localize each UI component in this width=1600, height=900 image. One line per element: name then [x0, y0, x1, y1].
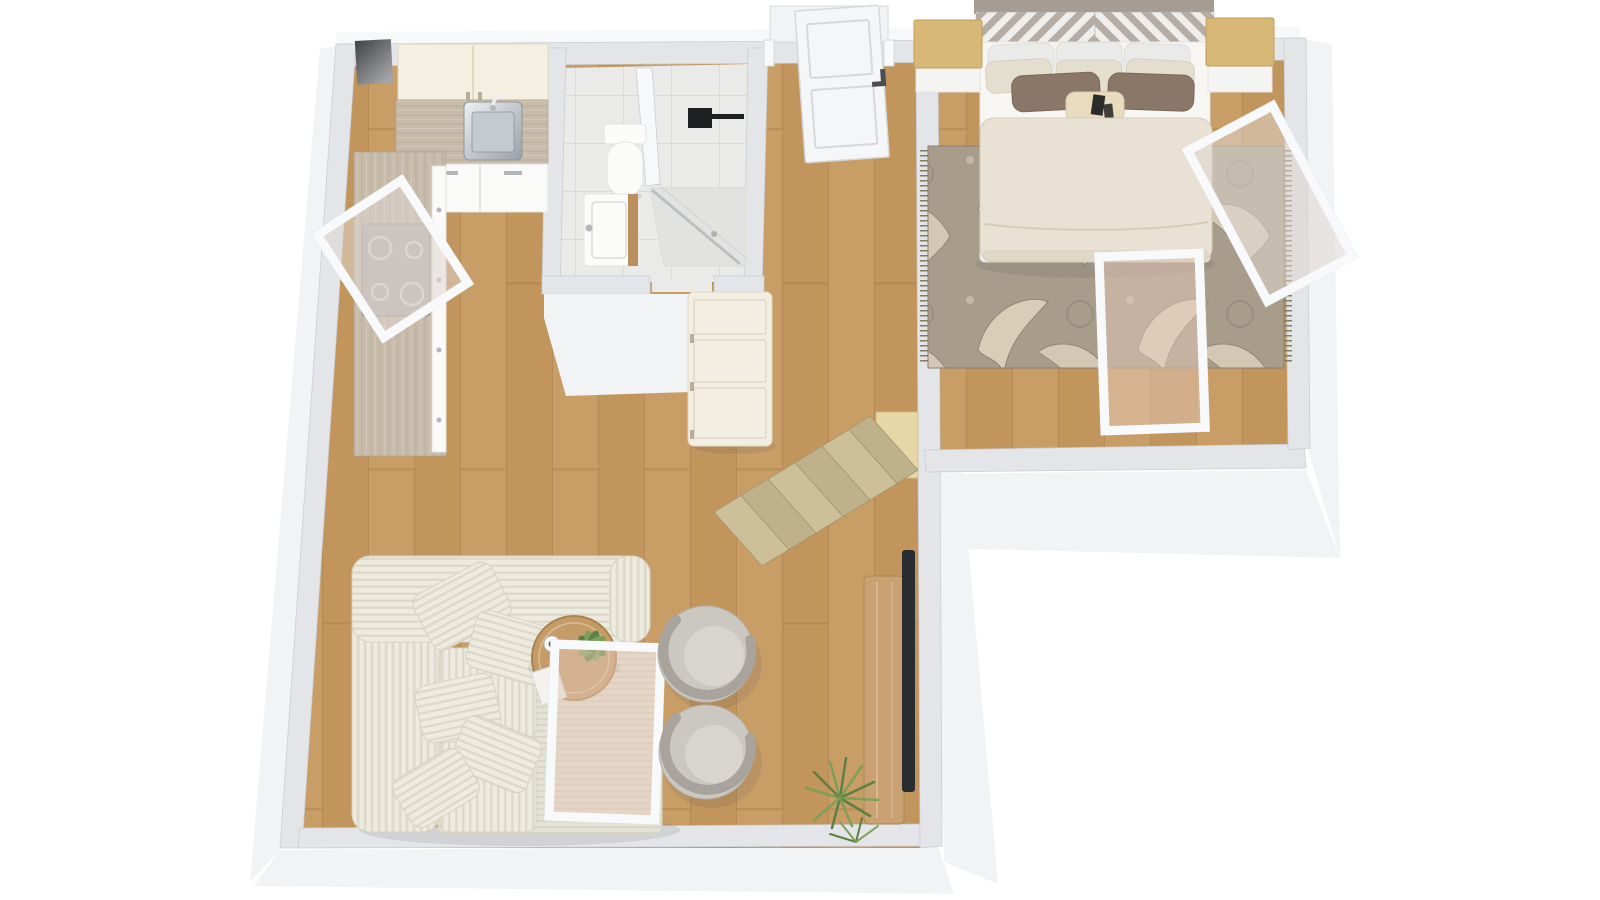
living-open-window	[545, 640, 665, 824]
door-handle	[880, 69, 886, 83]
bath-bottom-wall-right	[714, 276, 764, 294]
bedroom-right-wall-face	[1306, 40, 1340, 558]
faucet-base	[490, 105, 496, 111]
wall-shaft-opening	[355, 39, 393, 85]
vanity-wood-side	[628, 194, 638, 266]
floorplan-render	[0, 0, 1600, 900]
bathroom-door-threshold	[652, 278, 712, 292]
wall-tv	[902, 550, 915, 792]
door-frame-post	[764, 40, 774, 66]
bedroom-bottom-wall-face	[926, 470, 1340, 558]
toilet	[604, 124, 646, 201]
media-sideboard	[864, 576, 904, 824]
door-frame-post	[884, 40, 894, 66]
toilet-bowl	[607, 142, 643, 196]
vanity-faucet	[586, 225, 593, 232]
wardrobe-handle	[690, 334, 694, 343]
vanity-sink	[584, 194, 638, 266]
nightstand-right	[1206, 18, 1274, 92]
armchair-seat	[684, 626, 744, 686]
duvet	[980, 118, 1212, 262]
knob	[437, 418, 442, 423]
knob	[437, 348, 442, 353]
sink-basin-inner	[472, 112, 514, 152]
wardrobe-body	[688, 292, 772, 446]
wardrobe-handle	[690, 430, 694, 439]
entry-door	[795, 5, 891, 163]
toilet-tank	[604, 124, 646, 144]
bedroom-open-window-foot	[1095, 249, 1209, 435]
shower-head-fixture	[688, 108, 712, 128]
bath-bottom-wall-left	[542, 276, 650, 294]
sofa-armrest-roll	[610, 556, 650, 642]
double-bed	[974, 0, 1214, 262]
shower-drain	[711, 231, 717, 237]
nightstand-top	[914, 20, 982, 68]
wardrobe-handle	[690, 382, 694, 391]
kitchen-sink	[464, 96, 522, 160]
floorplan-stage	[0, 0, 1600, 900]
drawer-handle	[504, 171, 522, 175]
window-glass	[549, 644, 661, 820]
window-glass	[1099, 253, 1205, 430]
nightstand-left	[914, 20, 982, 92]
knob	[437, 208, 442, 213]
bath-bottom-wall-big-face	[544, 294, 694, 396]
wardrobe-cabinet	[688, 292, 776, 454]
bottom-wall-face	[254, 846, 954, 894]
shower-arm-fixture	[712, 114, 744, 119]
nightstand-top	[1206, 18, 1274, 66]
lumbar-pillow-motif	[1103, 104, 1113, 119]
